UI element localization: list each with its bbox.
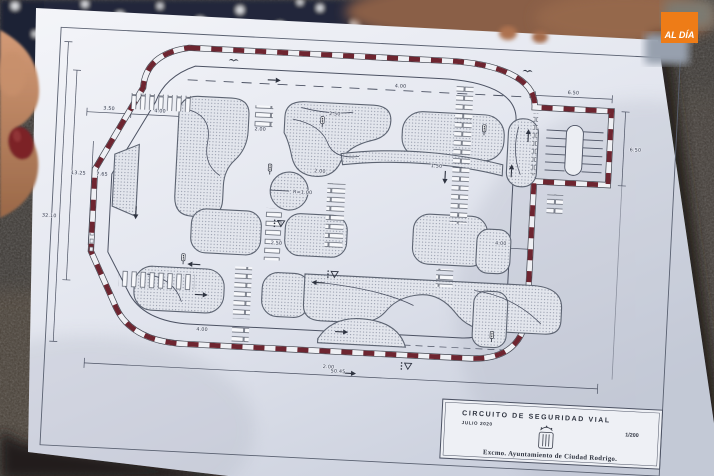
plan-scale: 1/200	[625, 432, 639, 439]
dimension-label: 13.25	[71, 170, 86, 177]
title-block: CIRCUITO DE SEGURIDAD VIAL JULIO 2020 1/…	[440, 399, 663, 469]
aldia-logo-text: AL DÍA	[664, 30, 695, 40]
island	[190, 208, 262, 255]
dimension-label: 6.50	[630, 147, 642, 154]
dimension-label: 2.50	[329, 111, 341, 118]
island	[472, 291, 509, 349]
dimension-label: 4.00	[495, 241, 507, 248]
dimension-label: 4.00	[395, 83, 407, 90]
dimension-label: 7.65	[96, 171, 108, 178]
dimension-label: 2.50	[271, 240, 283, 247]
dimension-label: 2.00	[254, 126, 266, 133]
dimension-label: 32.10	[42, 213, 57, 220]
dimension-label: 4.00	[154, 108, 166, 115]
island	[112, 143, 140, 216]
zebra-crossing	[231, 324, 249, 343]
dimension-label: 1.50	[431, 163, 443, 170]
aldia-logo-badge: AL DÍA	[661, 12, 698, 43]
island	[475, 229, 511, 275]
zebra-crossing	[436, 269, 454, 288]
zebra-crossing	[324, 183, 345, 250]
zebra-crossing	[254, 105, 273, 128]
photo-stage: 3.50 4.00 4.00 13.25 7.65 32.10 6.50 6.5…	[0, 0, 714, 476]
dimension-label: 6.50	[568, 90, 580, 97]
dimension-label: 2.00	[323, 364, 335, 371]
zebra-crossing	[546, 194, 563, 217]
zebra-crossing	[233, 266, 253, 319]
dimension-label: 3.50	[103, 106, 115, 113]
give-way-dots	[88, 233, 94, 253]
dimension-label: 2.00	[314, 168, 326, 175]
dimension-label: 4.00	[196, 327, 208, 334]
dimension-label: R=1.00	[293, 189, 313, 196]
zebra-crossing	[264, 208, 283, 261]
